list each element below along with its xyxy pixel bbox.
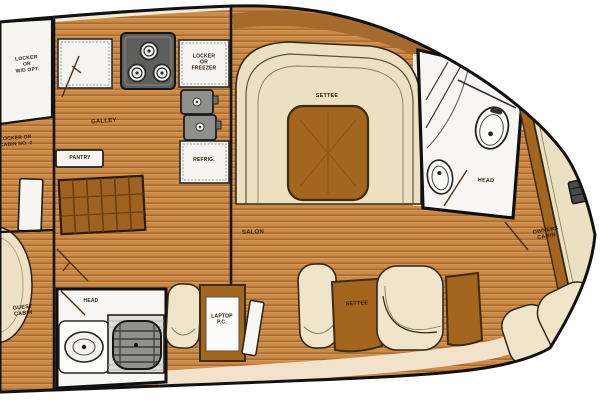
stove-burner (129, 65, 146, 82)
locker-wd-room (0, 19, 52, 124)
nav-chair (165, 283, 201, 349)
freezer-locker (179, 40, 229, 87)
washer-icon (108, 315, 164, 373)
laptop-paper (206, 297, 239, 351)
nav-desk (200, 285, 245, 361)
companionway-steps (59, 176, 146, 234)
settee-back-wood (332, 279, 382, 351)
galley-sink (181, 90, 221, 140)
forward-head-room (418, 50, 524, 218)
guest-locker-panel (18, 179, 43, 232)
stove (121, 33, 175, 89)
floor-plan: LOCKER OR W/D OPT. LOCKER OR CABIN NO. 2… (0, 0, 600, 400)
aft-head-room (57, 289, 166, 388)
pantry-cabinet (56, 150, 103, 167)
salon-chair (377, 266, 443, 350)
galley-counter (58, 39, 112, 88)
aft-sink-icon (65, 332, 103, 362)
stove-burner (154, 65, 171, 82)
refrigerator (180, 141, 229, 183)
floor-plan-canvas (0, 0, 600, 400)
settee-back-wood (446, 273, 482, 345)
dinette-table (288, 106, 368, 200)
stove-burner (141, 43, 158, 60)
